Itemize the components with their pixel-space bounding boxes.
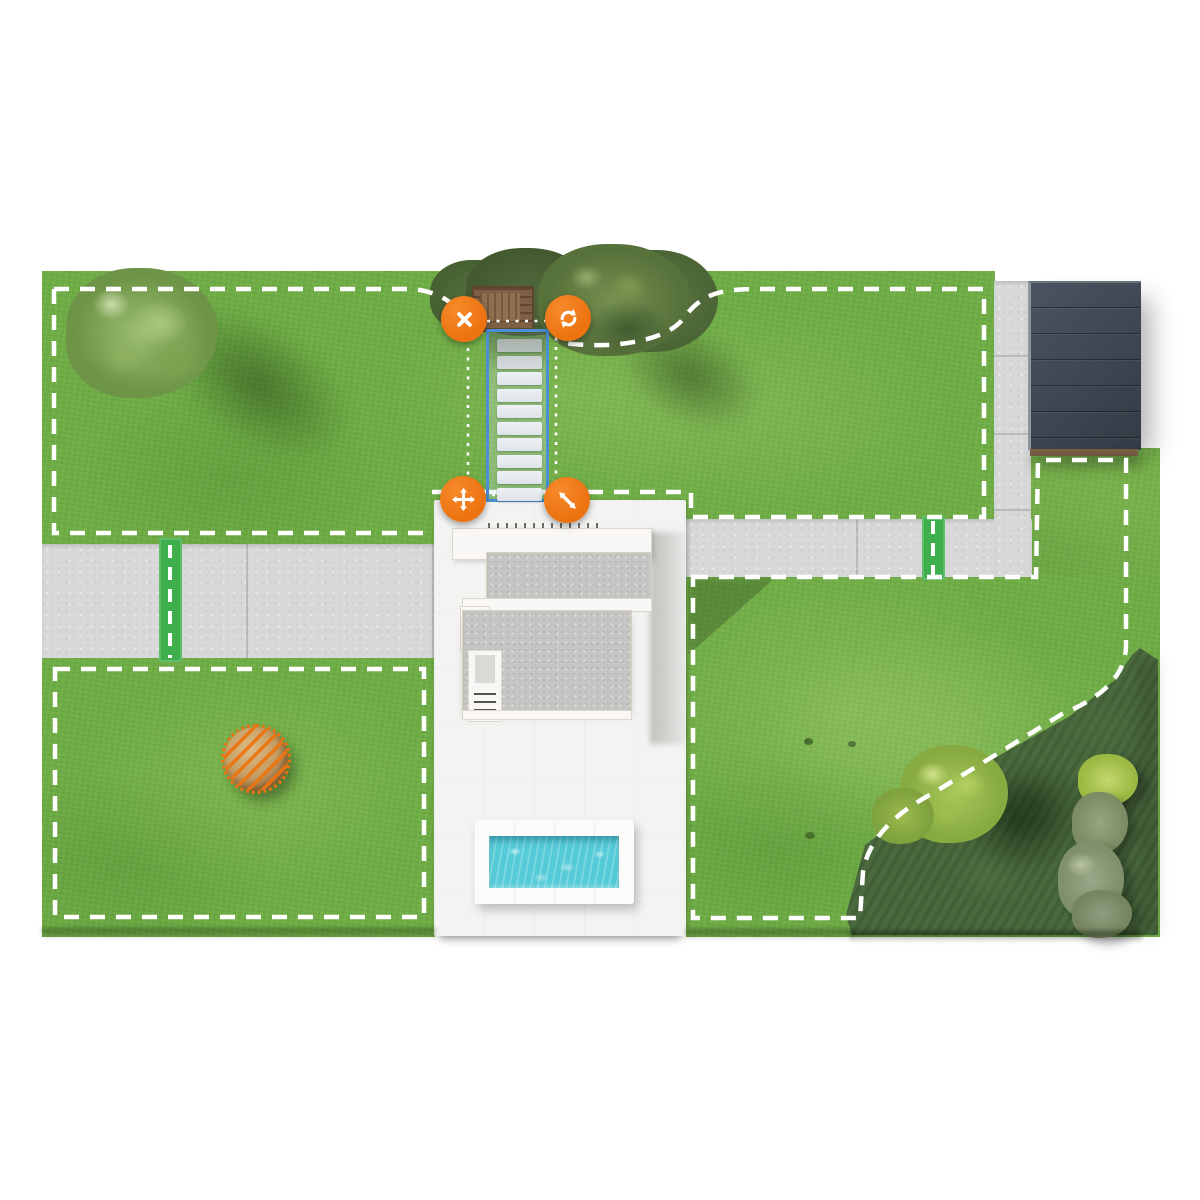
house-shadow — [650, 532, 686, 744]
concrete-path-left — [42, 544, 435, 658]
shed-roof-panels — [1031, 283, 1141, 450]
stepping-stone — [497, 389, 542, 402]
stepping-stone — [497, 471, 542, 484]
obstacle-marker[interactable] — [221, 724, 291, 794]
concrete-path-vertical — [994, 281, 1031, 577]
close-icon — [451, 306, 478, 333]
move-zone-handle[interactable] — [440, 476, 486, 522]
delete-zone-handle[interactable] — [441, 296, 487, 342]
garden-map-editor — [0, 0, 1200, 1200]
stepping-stone — [497, 405, 542, 418]
pool — [474, 820, 634, 904]
transfer-corridor-right[interactable] — [922, 516, 945, 580]
house-bottom-ledge — [462, 710, 632, 720]
lawn-edge — [42, 928, 435, 939]
rotate-zone-handle[interactable] — [545, 295, 591, 341]
lawn-speck — [805, 832, 815, 839]
stepping-stone — [497, 438, 542, 451]
shed-shadow — [1030, 455, 1140, 473]
resize-icon — [554, 487, 581, 514]
house-roof-upper — [486, 552, 652, 602]
stepping-stone — [497, 488, 542, 501]
lawn-zone-bottom-left[interactable] — [42, 656, 435, 937]
selected-zone-stepping-stone-path[interactable] — [486, 329, 549, 502]
stepping-stone — [497, 455, 542, 468]
transfer-corridor-left[interactable] — [159, 538, 182, 662]
stepping-stone — [497, 422, 542, 435]
lawn-speck — [848, 741, 856, 747]
move-icon — [450, 486, 477, 513]
foliage-shade-overlay — [489, 332, 546, 374]
lawn-speck — [804, 738, 813, 745]
pool-water — [489, 836, 619, 888]
lawn-edge — [686, 929, 854, 940]
lawn-edge — [850, 931, 1142, 942]
resize-zone-handle[interactable] — [544, 477, 590, 523]
concrete-path-right — [686, 519, 1032, 577]
rotate-icon — [555, 305, 582, 332]
planting-area-shadow — [1142, 660, 1164, 935]
obstacle-dotted-ring — [221, 724, 291, 794]
shed-roof — [1028, 281, 1141, 450]
